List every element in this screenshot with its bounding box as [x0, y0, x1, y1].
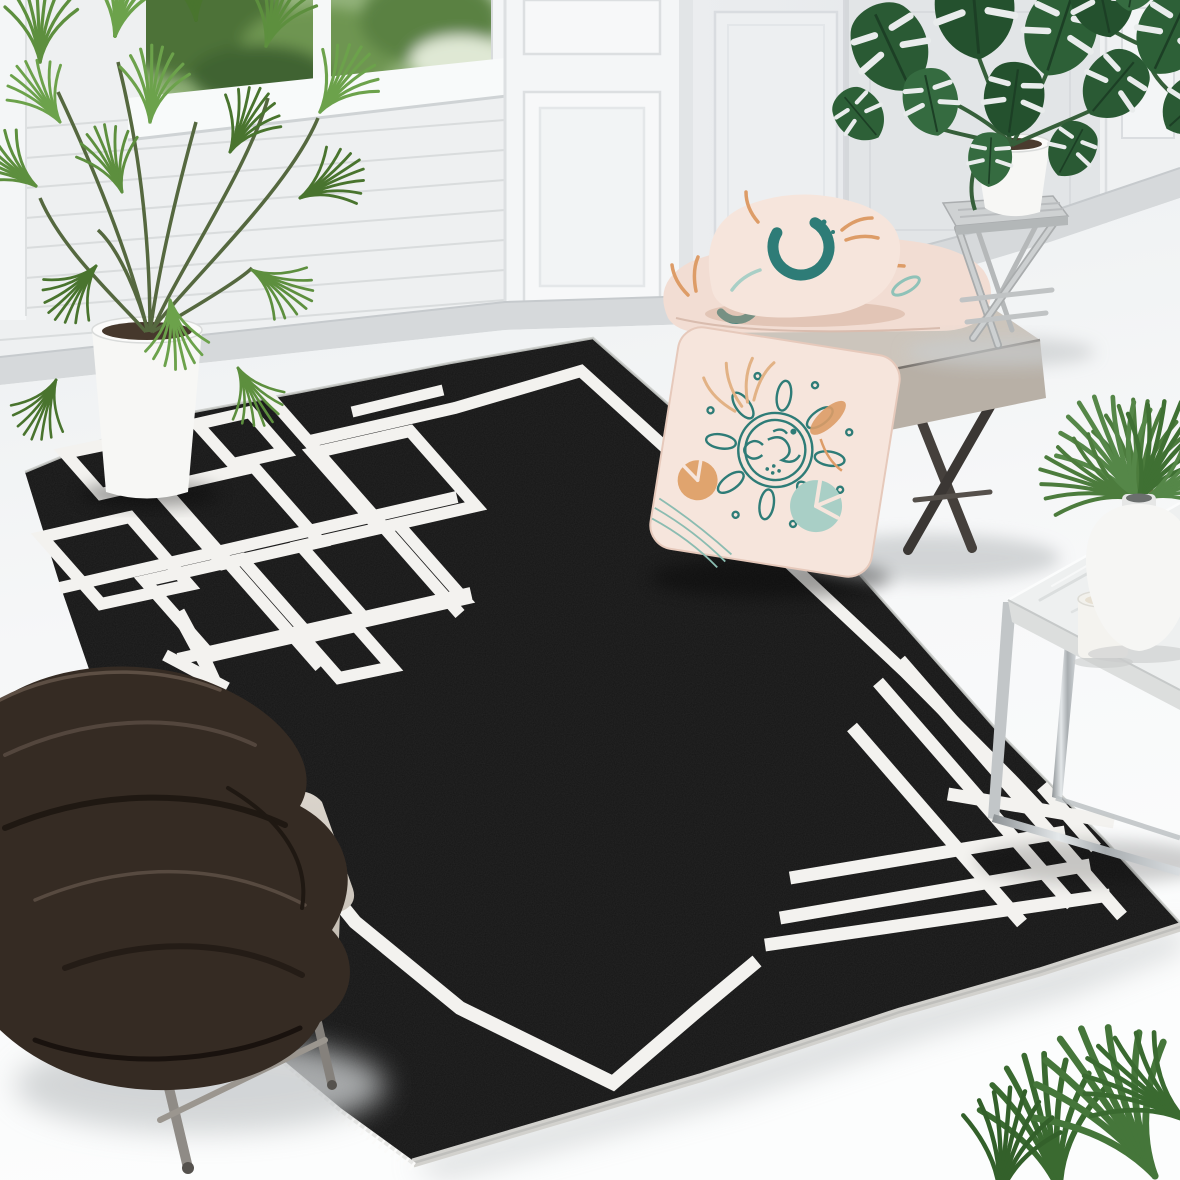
pillar-panel-top [524, 0, 660, 54]
window-mullion [313, 0, 331, 80]
pillow-back [705, 192, 905, 327]
pillow-back-body [709, 194, 900, 317]
product-photo-stage [0, 0, 1180, 1180]
scene-photo [0, 0, 1180, 1180]
